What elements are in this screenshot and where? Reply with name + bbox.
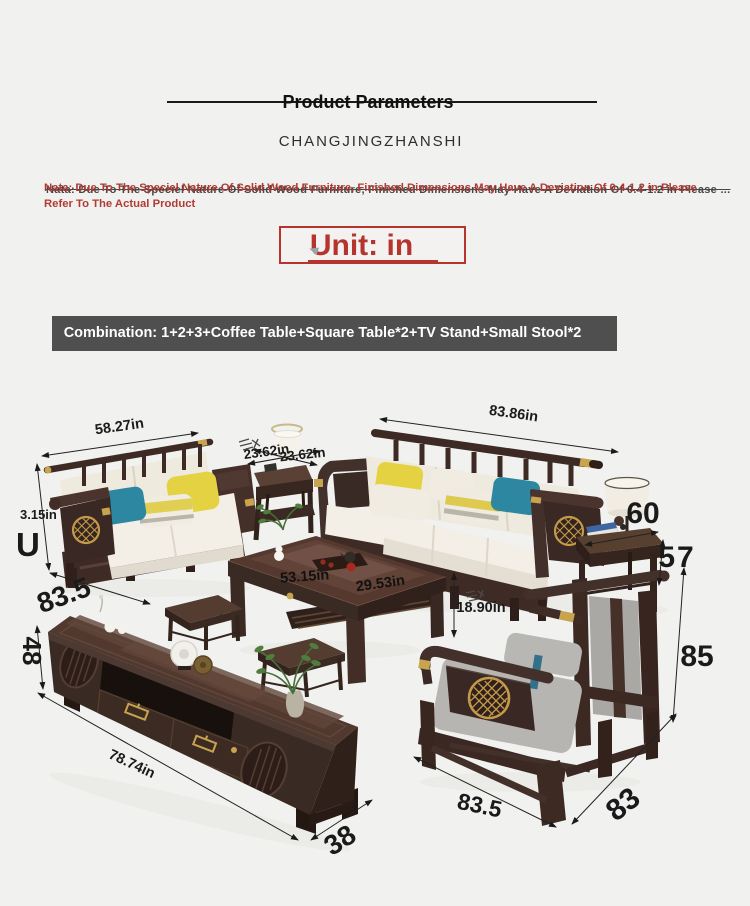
svg-text:83.86in: 83.86in xyxy=(488,403,539,426)
svg-text:60: 60 xyxy=(626,497,659,530)
svg-text:18.90in: 18.90in xyxy=(456,600,505,616)
svg-text:78.74in: 78.74in xyxy=(106,747,157,782)
svg-text:48: 48 xyxy=(17,637,47,666)
svg-text:83.5: 83.5 xyxy=(455,788,504,823)
svg-text:38: 38 xyxy=(318,819,361,862)
svg-text:58.27in: 58.27in xyxy=(94,416,145,439)
svg-text:85: 85 xyxy=(680,640,713,673)
svg-text:53.15in: 53.15in xyxy=(280,567,330,586)
svg-text:U: U xyxy=(16,526,40,563)
svg-text:3.15in: 3.15in xyxy=(20,507,57,522)
svg-text:83.5: 83.5 xyxy=(33,571,95,619)
svg-text:57: 57 xyxy=(658,541,695,574)
